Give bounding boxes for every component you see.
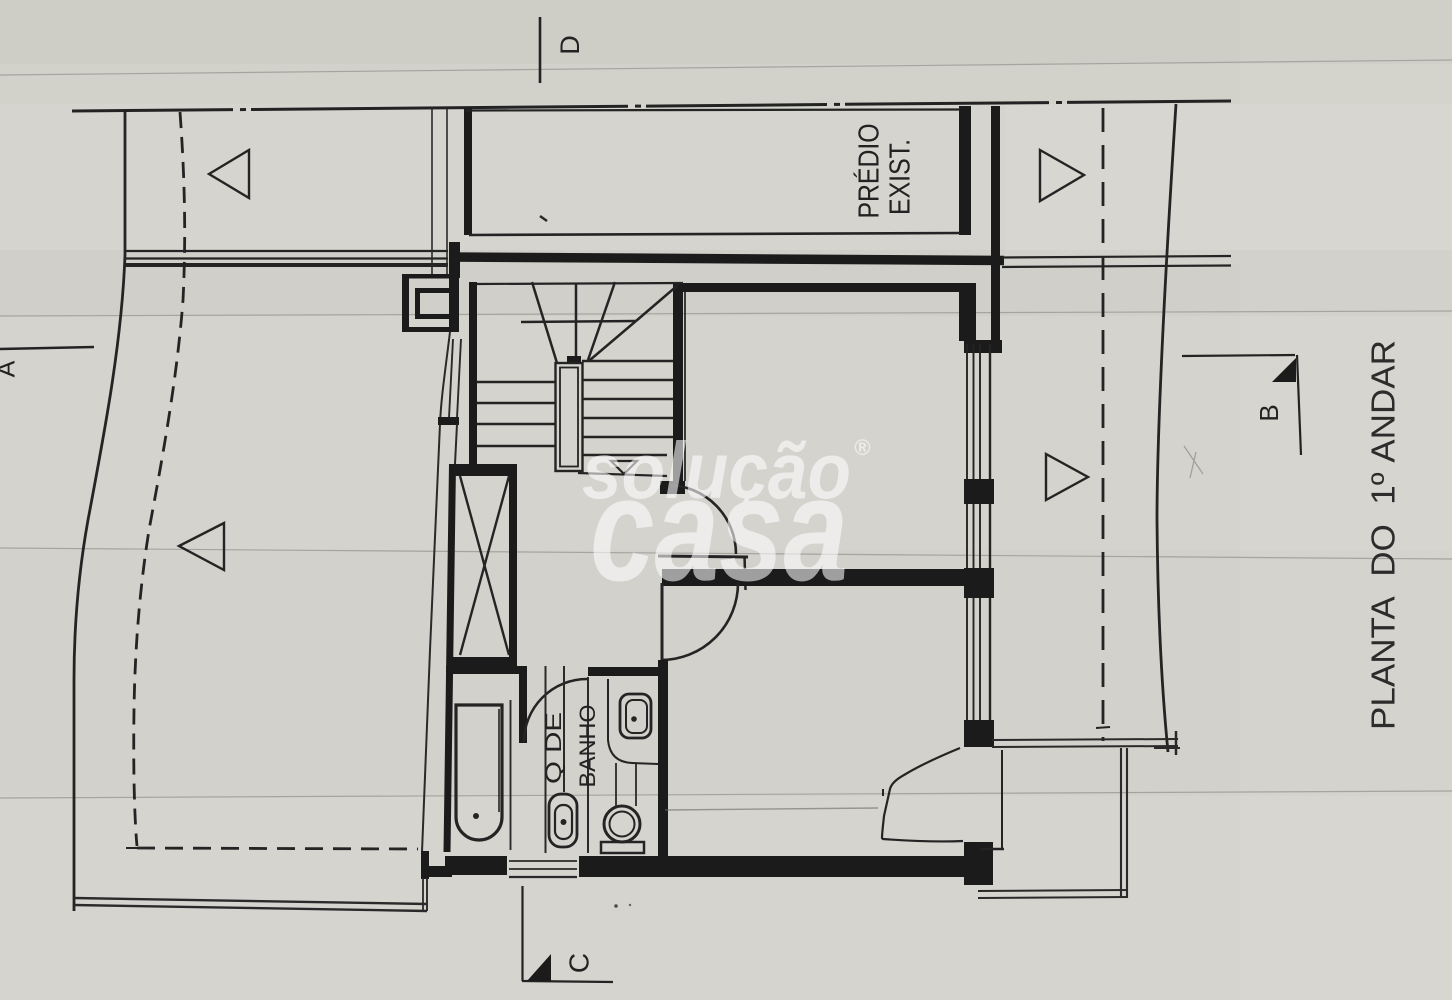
svg-text:Q DE: Q DE (541, 712, 566, 784)
svg-text:C: C (563, 953, 594, 973)
svg-text:BANHO: BANHO (575, 705, 600, 788)
svg-text:B: B (1254, 404, 1284, 421)
svg-text:EXIST.: EXIST. (885, 139, 917, 215)
svg-text:PRÉDIO: PRÉDIO (853, 124, 886, 219)
svg-text:casa: casa (590, 447, 848, 612)
svg-text:A: A (0, 360, 21, 377)
svg-text:PLANTA DO 1º ANDAR: PLANTA DO 1º ANDAR (1365, 340, 1402, 730)
svg-text:D: D (555, 35, 585, 55)
svg-text:®: ® (854, 435, 871, 460)
